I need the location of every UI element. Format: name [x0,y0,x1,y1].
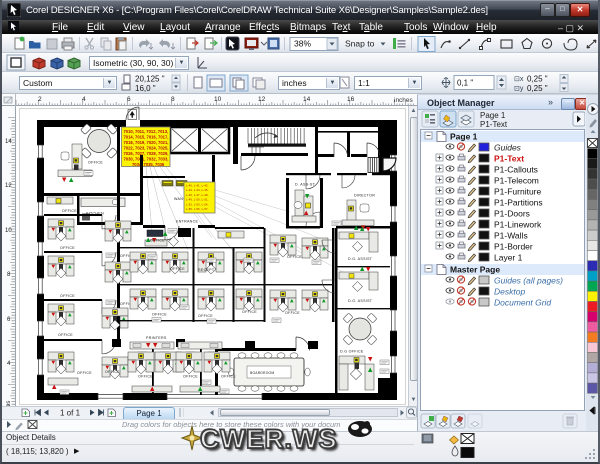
svg-text:P1-Partitions: P1-Partitions [494,198,543,208]
svg-text:1 of 1: 1 of 1 [60,409,81,418]
svg-text:BOARDROOM: BOARDROOM [250,371,274,375]
svg-text:Layer 1: Layer 1 [494,253,523,263]
svg-text:7010, 7011, 7012, 7013,: 7010, 7011, 7012, 7013, [124,129,169,134]
svg-text:Snap to: Snap to [345,39,375,49]
svg-text:OFFICE: OFFICE [88,161,103,165]
svg-text:16,0 ": 16,0 " [135,84,156,93]
svg-text:PRINTERS: PRINTERS [146,336,167,340]
svg-text:OFFICE: OFFICE [170,267,185,271]
svg-text:Master Page: Master Page [450,265,500,275]
svg-text:OFFICE: OFFICE [77,371,92,375]
svg-text:D. ASS-ST: D. ASS-ST [295,183,316,187]
svg-text:Document Grid: Document Grid [494,298,551,308]
svg-text:8: 8 [171,96,175,103]
svg-text:L-55, L-56, L-57,: L-55, L-56, L-57, [186,207,209,211]
svg-text:OFFICE: OFFICE [287,255,302,259]
svg-text:OFFICE: OFFICE [242,310,257,314]
svg-text:Page 1: Page 1 [450,132,478,142]
svg-text:P1-Text: P1-Text [480,120,508,129]
svg-text:OFFICE: OFFICE [60,294,75,298]
svg-text:P1-Walls: P1-Walls [494,231,528,241]
svg-text:⊡y: ⊡y [514,86,524,93]
svg-text:P1-Furniture: P1-Furniture [494,187,542,197]
svg-text:L-52, L-53, L-54,: L-52, L-53, L-54, [186,202,209,206]
svg-text:OFFICE: OFFICE [198,314,213,318]
svg-text:7014, 7015, 7016, 7017,: 7014, 7015, 7016, 7017, [124,135,169,140]
svg-text:OFFICE: OFFICE [150,239,165,243]
svg-text:20,125 ": 20,125 " [135,75,165,84]
svg-text:OFFICE: OFFICE [58,333,73,337]
svg-text:D.G. ASSIST: D.G. ASSIST [348,299,373,303]
svg-text:OFFICE: OFFICE [60,246,75,250]
svg-text:P1-Telecom: P1-Telecom [494,176,539,186]
svg-text:ENTRANCE: ENTRANCE [176,220,198,224]
svg-text:12: 12 [5,183,12,189]
svg-text:L-43, L-44, L-45,: L-43, L-44, L-45, [186,188,209,192]
svg-text:D.G. ASSIST: D.G. ASSIST [348,257,373,261]
svg-text:0,25 ": 0,25 " [527,75,548,84]
svg-text:2: 2 [38,96,42,103]
svg-text:inches: inches [394,97,414,104]
svg-text:OFFICE: OFFICE [221,375,236,379]
svg-text:DIRECTOR: DIRECTOR [354,194,375,198]
svg-text:P1-Doors: P1-Doors [494,209,530,219]
svg-text:16: 16 [347,96,355,103]
svg-text:OFFICE: OFFICE [183,375,198,379]
svg-text:OFFICE: OFFICE [152,313,167,317]
svg-text:L-46, L-47, L-48,: L-46, L-47, L-48, [186,193,209,197]
svg-text:⊡x: ⊡x [514,76,524,83]
svg-text:10: 10 [5,228,12,234]
svg-text:D.G OFFICE: D.G OFFICE [340,350,364,354]
svg-text:7026, 7027, 7028, 7029,: 7026, 7027, 7028, 7029, [124,151,169,156]
svg-text:P1-Border: P1-Border [494,242,533,252]
svg-text:P1-Linework: P1-Linework [494,220,542,230]
svg-text:4: 4 [82,96,86,103]
svg-text:0,25 ": 0,25 " [527,84,548,93]
svg-text:10: 10 [214,96,222,103]
svg-text:OFFICE: OFFICE [138,375,153,379]
svg-text:0,1 ": 0,1 " [457,79,473,88]
svg-text:14: 14 [5,139,12,145]
svg-text:P1-Callouts: P1-Callouts [494,165,538,175]
svg-text:OFFICE: OFFICE [285,311,300,315]
svg-text:RECEPT: RECEPT [198,268,215,272]
svg-text:OFFICE: OFFICE [62,209,77,213]
svg-text:WAN: WAN [174,197,183,201]
svg-text:12: 12 [258,96,266,103]
svg-text:7022, 7023, 7024, 7025,: 7022, 7023, 7024, 7025, [124,146,169,151]
svg-text:Guides (all pages): Guides (all pages) [494,276,563,286]
svg-text:6: 6 [127,96,131,103]
svg-text:Guides: Guides [494,143,522,153]
svg-text:7030, 7031, 7032, 7033,: 7030, 7031, 7032, 7033, [124,156,169,161]
svg-text:L-40, L-41, L-42,: L-40, L-41, L-42, [186,184,209,188]
svg-text:38%: 38% [294,39,311,49]
svg-text:Page 1: Page 1 [480,111,506,120]
svg-text:14: 14 [303,96,311,103]
svg-text:7018, 7019, 7020, 7021,: 7018, 7019, 7020, 7021, [124,140,169,145]
svg-text:L-49, L-50, L-51,: L-49, L-50, L-51, [186,198,209,202]
svg-text:OFFICE: OFFICE [105,370,120,374]
svg-text:7034, 7035, 7036: 7034, 7035, 7036 [132,162,165,167]
svg-text:Desktop: Desktop [494,287,525,297]
svg-text:P1-Text: P1-Text [494,154,524,164]
